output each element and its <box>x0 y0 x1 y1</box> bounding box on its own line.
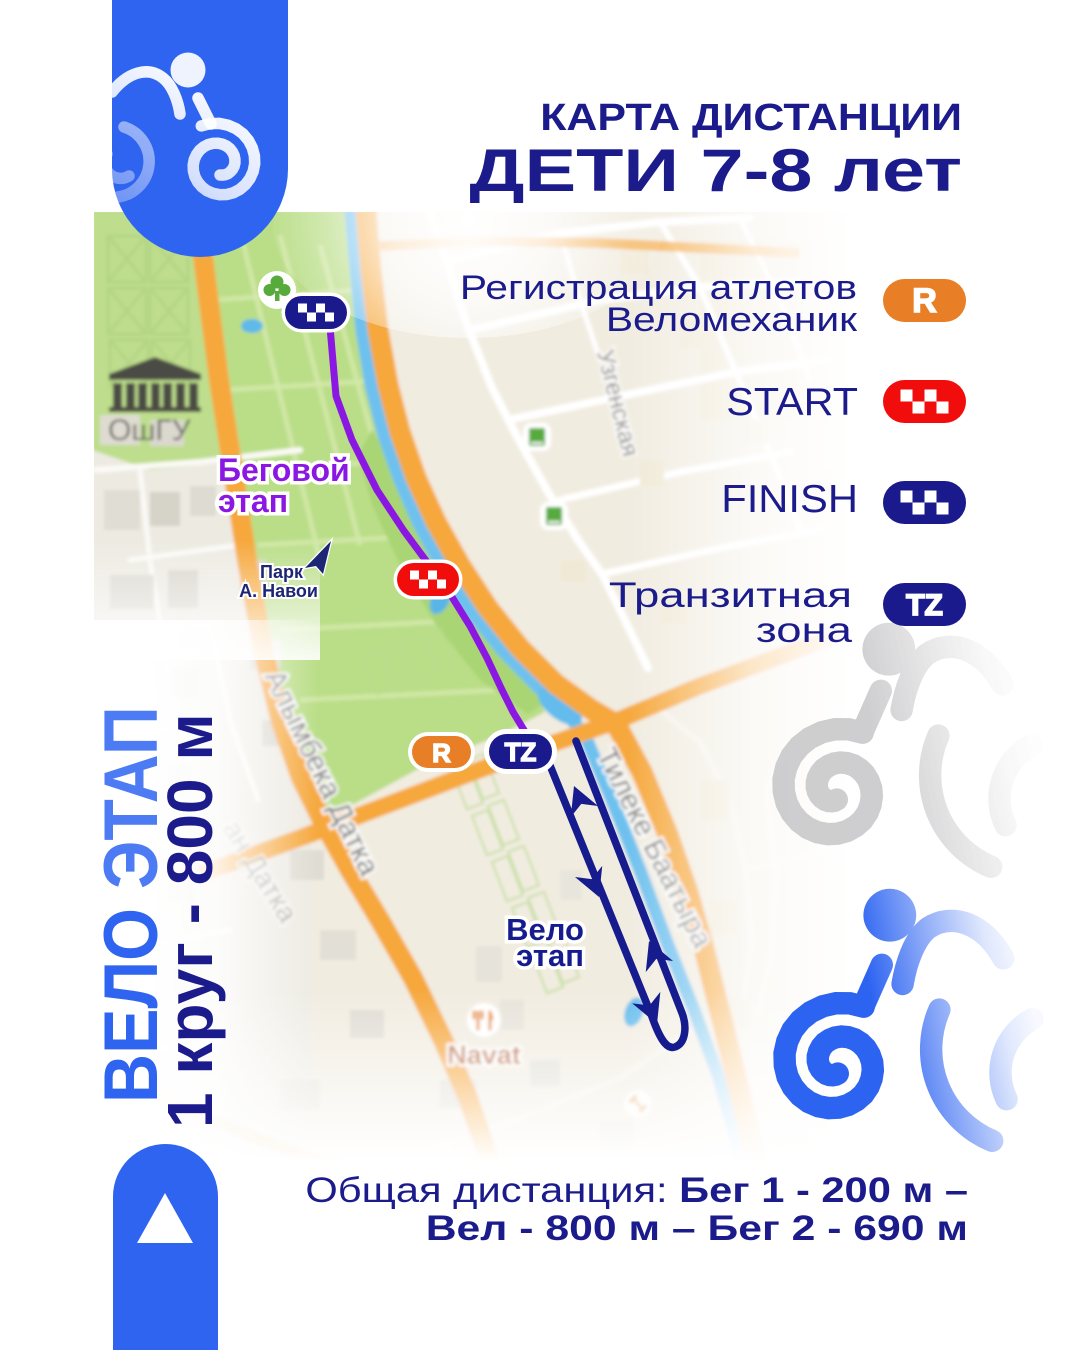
svg-text:R: R <box>912 282 937 320</box>
svg-text:TZ: TZ <box>906 589 943 622</box>
svg-text:этап: этап <box>218 483 288 519</box>
svg-text:TZ: TZ <box>505 737 537 767</box>
svg-text:Парк: Парк <box>260 562 304 582</box>
svg-text:ОшГУ: ОшГУ <box>108 414 192 447</box>
svg-text:R: R <box>432 738 451 768</box>
svg-text:А. Навои: А. Навои <box>239 581 318 601</box>
svg-text:этап: этап <box>516 938 584 973</box>
